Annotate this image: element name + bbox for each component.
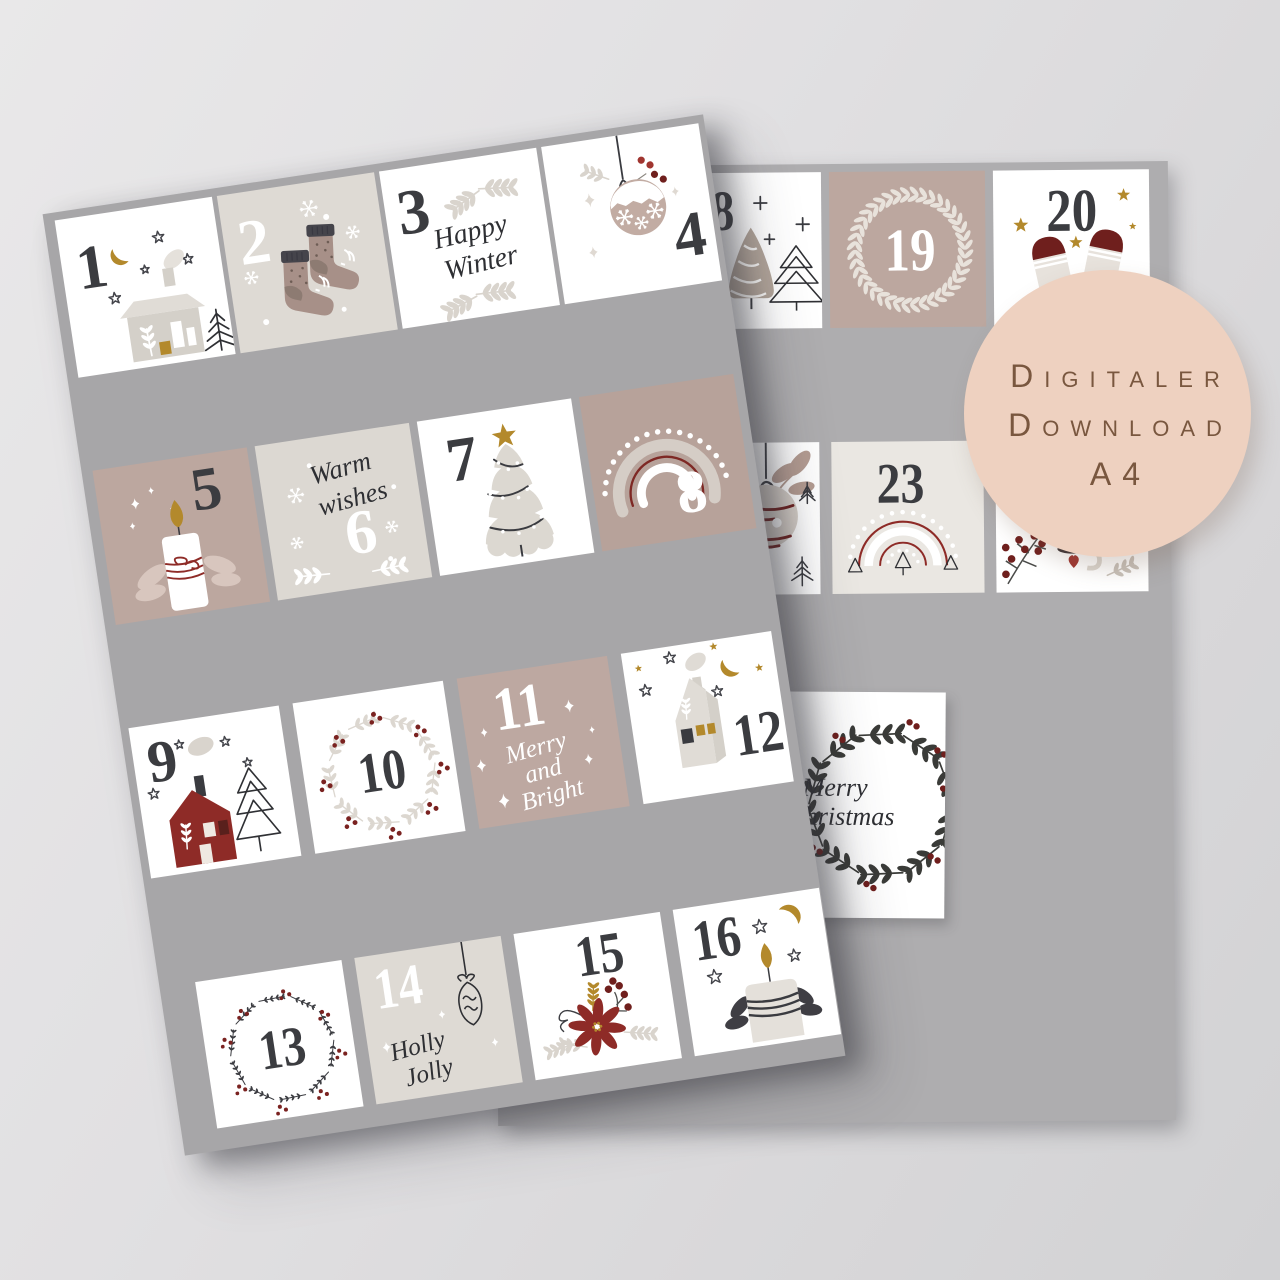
svg-text:4: 4 [669, 197, 711, 272]
svg-text:23: 23 [876, 452, 924, 515]
svg-text:20: 20 [1046, 178, 1098, 245]
svg-text:5: 5 [186, 454, 226, 525]
svg-text:13: 13 [255, 1014, 310, 1082]
svg-text:Merry: Merry [802, 773, 869, 802]
svg-text:1: 1 [72, 232, 113, 304]
svg-text:3: 3 [392, 174, 434, 249]
svg-text:7: 7 [441, 422, 483, 496]
svg-text:9: 9 [143, 726, 182, 796]
svg-text:14: 14 [370, 953, 427, 1023]
svg-text:19: 19 [884, 217, 936, 284]
svg-text:2: 2 [233, 204, 275, 279]
svg-text:12: 12 [729, 696, 788, 769]
svg-text:15: 15 [571, 920, 628, 990]
svg-text:16: 16 [688, 904, 745, 974]
svg-text:10: 10 [354, 737, 411, 806]
